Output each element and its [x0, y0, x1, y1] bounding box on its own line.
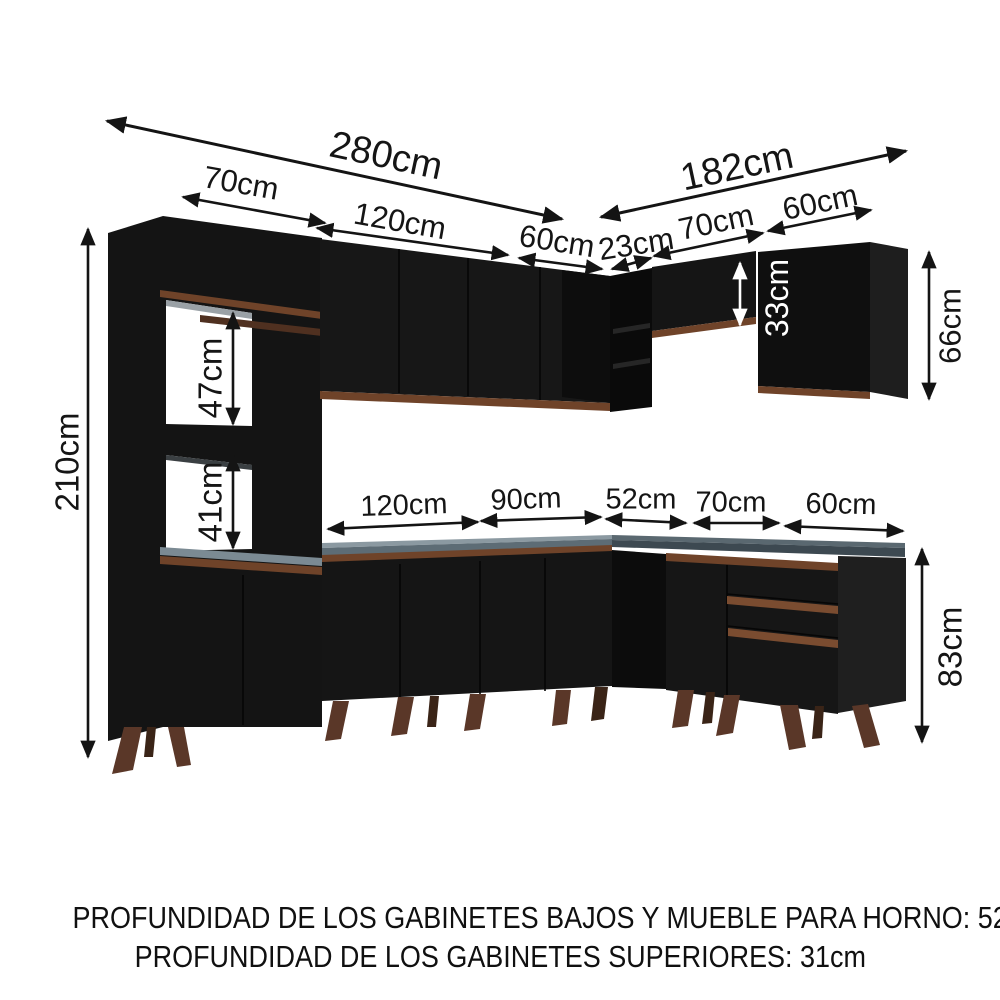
dim-label-47: 47cm [194, 338, 227, 419]
dim-label-41: 41cm [194, 462, 227, 543]
dim-label-70-mid: 70cm [696, 489, 767, 518]
kitchen-dimension-diagram: 280cm 182cm 70cm 120cm 60cm 23cm 70cm 60… [0, 0, 1000, 1000]
dim-label-52-mid: 52cm [606, 486, 677, 515]
arrow-52-mid [606, 519, 686, 523]
dim-label-83: 83cm [934, 607, 967, 688]
corner-open-shelf [610, 268, 652, 412]
arrow-120-mid [328, 522, 478, 529]
arrow-60-mid [785, 526, 903, 531]
dim-label-90-mid: 90cm [490, 484, 562, 515]
footnote-depth-base: PROFUNDIDAD DE LOS GABINETES BAJOS Y MUE… [0, 900, 1000, 936]
base-cabinets-right [612, 550, 906, 750]
arrow-90-mid [481, 517, 601, 521]
dim-label-66: 66cm [935, 288, 966, 364]
dim-label-60-mid: 60cm [805, 490, 876, 520]
dim-label-120-mid: 120cm [360, 490, 448, 522]
footnote-depth-upper: PROFUNDIDAD DE LOS GABINETES SUPERIORES:… [0, 939, 1000, 975]
base-cabinets-left [322, 545, 612, 741]
dim-label-33: 33cm [761, 259, 793, 337]
footnote-depth-upper-text: PROFUNDIDAD DE LOS GABINETES SUPERIORES:… [134, 939, 865, 975]
footnote-depth-base-text: PROFUNDIDAD DE LOS GABINETES BAJOS Y MUE… [73, 900, 1000, 936]
dim-label-210: 210cm [51, 412, 84, 511]
